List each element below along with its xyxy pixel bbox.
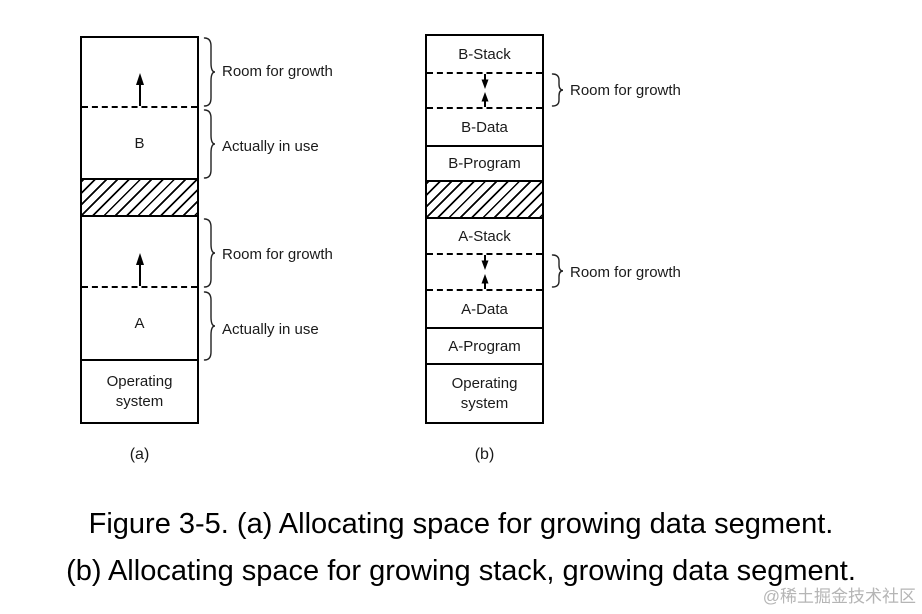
section-b-a-data: A-Data <box>427 291 542 329</box>
section-b-a-program: A-Program <box>427 329 542 365</box>
a-program-label: A-Program <box>448 338 521 355</box>
section-b-os: Operating system <box>427 365 542 422</box>
up-arrow-icon <box>133 73 147 106</box>
brace-icon <box>550 254 564 288</box>
annotation-room-for-growth-a-b: Room for growth <box>570 264 681 281</box>
a-stack-label: A-Stack <box>458 228 511 245</box>
down-up-arrows-icon <box>478 255 492 289</box>
figure-canvas: B A Operating system Room for growth Act… <box>0 0 922 614</box>
hatched-region-b <box>427 182 542 219</box>
section-a-growth-a <box>82 217 197 288</box>
diagram-b-caption-label: (b) <box>425 446 544 464</box>
a-data-label: A-Data <box>461 301 508 318</box>
process-a-label: A <box>134 315 144 332</box>
brace-icon <box>202 109 216 179</box>
down-up-arrows-icon <box>478 74 492 107</box>
annotation-room-for-growth-b-a: Room for growth <box>222 63 333 80</box>
b-data-label: B-Data <box>461 119 508 136</box>
process-b-label: B <box>134 135 144 152</box>
section-b-growth-b <box>427 74 542 109</box>
section-b-b-stack: B-Stack <box>427 36 542 74</box>
figure-caption-line1: Figure 3-5. (a) Allocating space for gro… <box>0 508 922 541</box>
os-label-line1: Operating <box>107 372 173 392</box>
brace-icon <box>202 37 216 107</box>
brace-icon <box>202 218 216 288</box>
section-b-b-program: B-Program <box>427 147 542 182</box>
section-a-os: Operating system <box>82 361 197 422</box>
section-a-growth-b <box>82 38 197 108</box>
section-b-b-data: B-Data <box>427 109 542 147</box>
os-label-line1: Operating <box>452 374 518 394</box>
diagram-a-caption-label: (a) <box>80 446 199 464</box>
up-arrow-icon <box>133 253 147 286</box>
section-a-process-a: A <box>82 288 197 361</box>
section-b-a-stack: A-Stack <box>427 219 542 255</box>
brace-icon <box>202 291 216 361</box>
section-b-growth-a <box>427 255 542 291</box>
annotation-in-use-b-a: Actually in use <box>222 138 319 155</box>
brace-icon <box>550 73 564 107</box>
memory-box-b: B-Stack B-Data B-Program A-Stack <box>425 34 544 424</box>
os-label-line2: system <box>452 394 518 414</box>
b-stack-label: B-Stack <box>458 46 511 63</box>
section-a-process-b: B <box>82 108 197 180</box>
os-label-line2: system <box>107 392 173 412</box>
figure-caption-line2: (b) Allocating space for growing stack, … <box>0 555 922 588</box>
annotation-room-for-growth-b-b: Room for growth <box>570 82 681 99</box>
hatched-region-a <box>82 180 197 217</box>
annotation-room-for-growth-a-a: Room for growth <box>222 246 333 263</box>
b-program-label: B-Program <box>448 155 521 172</box>
annotation-in-use-a-a: Actually in use <box>222 321 319 338</box>
memory-box-a: B A Operating system <box>80 36 199 424</box>
